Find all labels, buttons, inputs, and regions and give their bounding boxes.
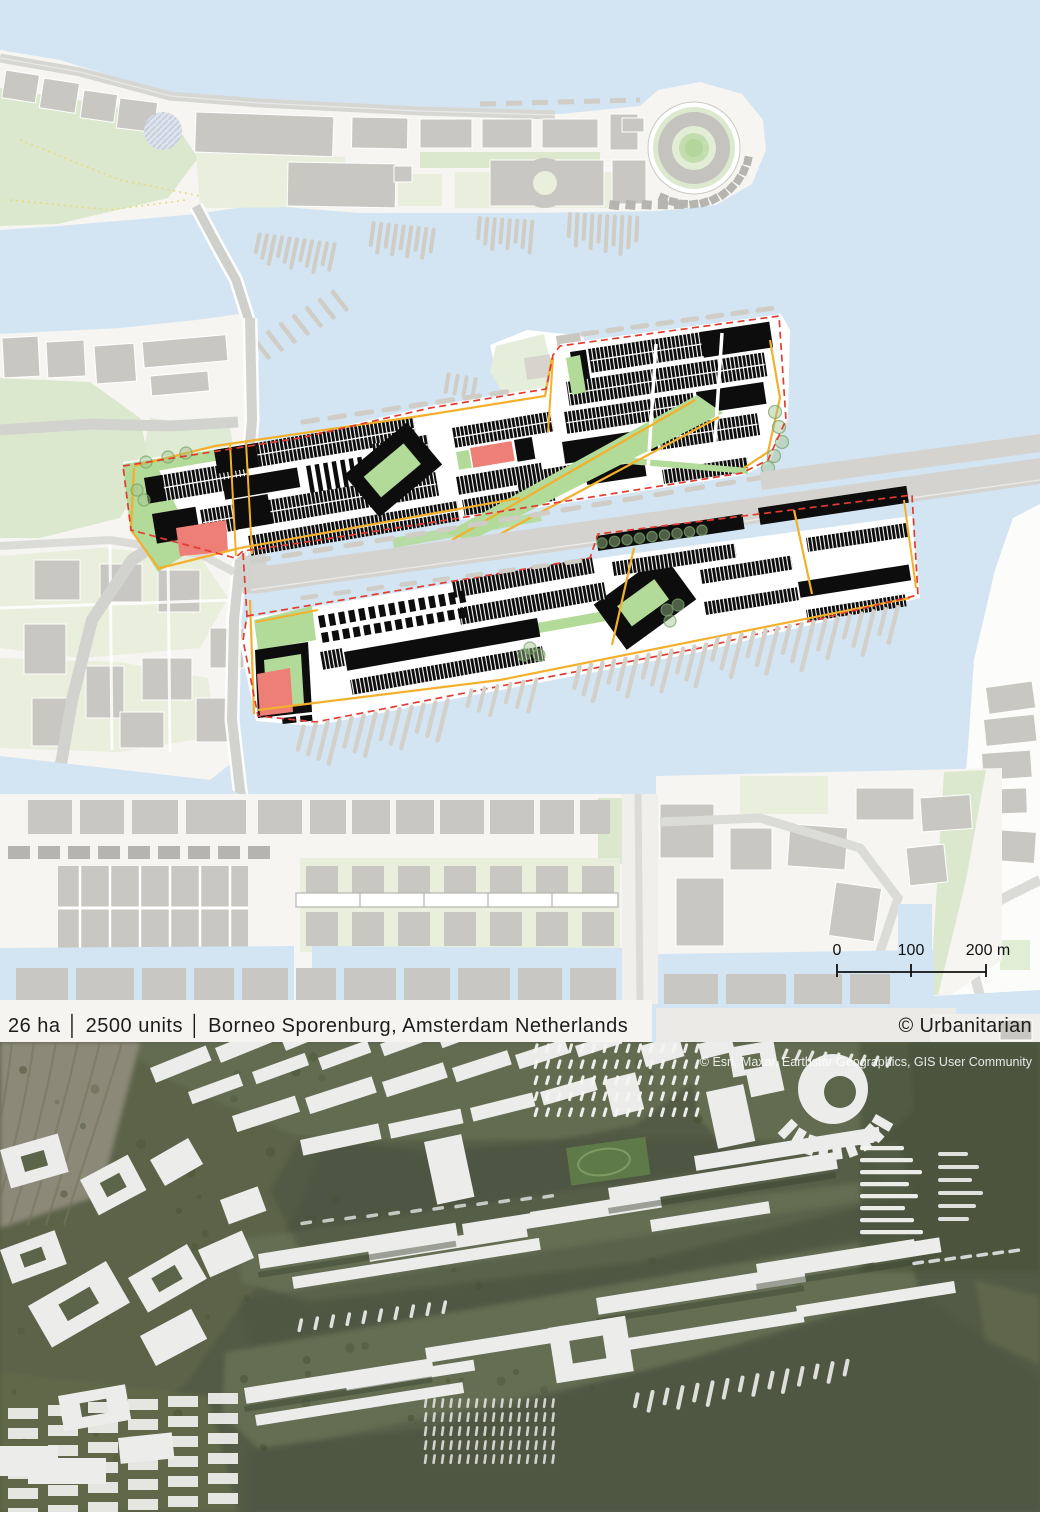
svg-text:© Urbanitarian: © Urbanitarian [899, 1015, 1032, 1037]
svg-text:200 m: 200 m [966, 942, 1010, 959]
svg-text:© Esri, Maxar, Earthstar Geogr: © Esri, Maxar, Earthstar Geographics, GI… [700, 1055, 1033, 1069]
svg-text:100: 100 [898, 942, 925, 959]
svg-text:0: 0 [833, 942, 842, 959]
svg-text:26 ha │ 2500 units │ Borneo Sp: 26 ha │ 2500 units │ Borneo Sporenburg, … [8, 1013, 628, 1039]
